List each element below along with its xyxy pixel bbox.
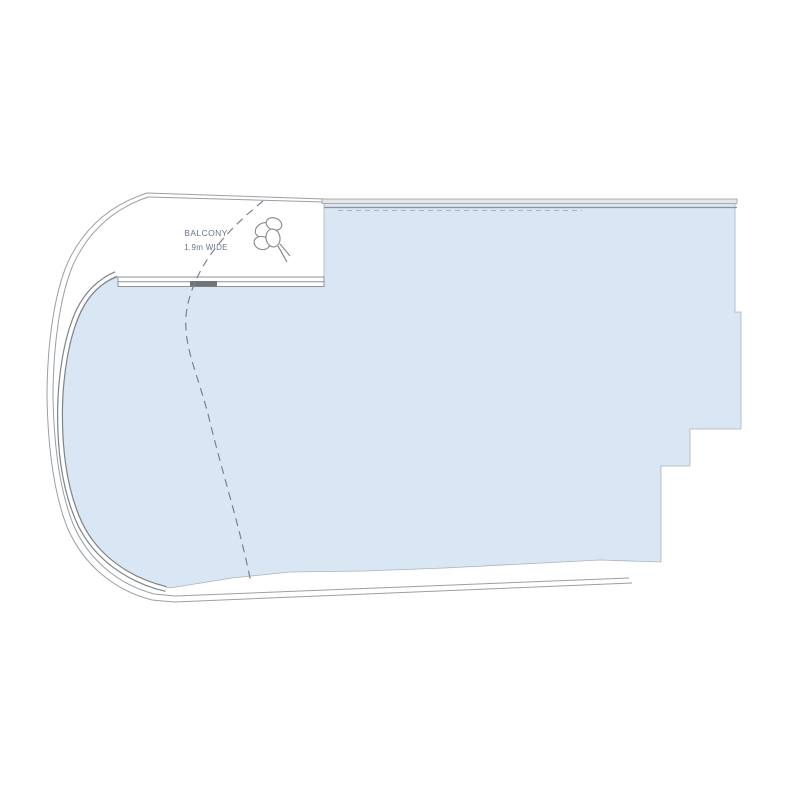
svg-text:BALCONY: BALCONY — [184, 228, 227, 238]
svg-text:1.9m WIDE: 1.9m WIDE — [184, 243, 228, 252]
